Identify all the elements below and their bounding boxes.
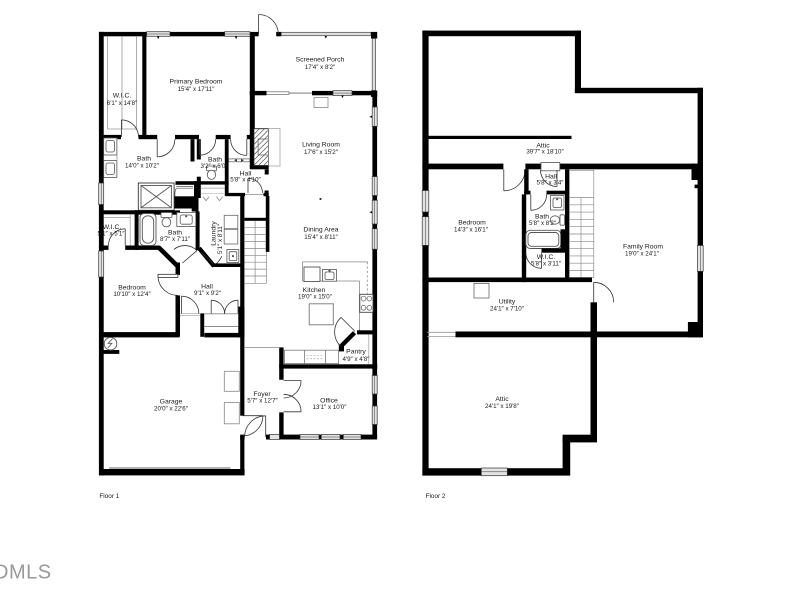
svg-text:9′1″ x 9′2″: 9′1″ x 9′2″ <box>194 290 222 297</box>
svg-text:6′1″ x 14′8″: 6′1″ x 14′8″ <box>107 100 138 107</box>
svg-text:20′0″ x 22′6″: 20′0″ x 22′6″ <box>154 406 189 413</box>
svg-text:Living Room: Living Room <box>302 142 340 149</box>
svg-text:3′2″ x 6′0″: 3′2″ x 6′0″ <box>201 163 229 170</box>
svg-text:5′8″ x 8′2″: 5′8″ x 8′2″ <box>529 220 557 227</box>
svg-text:17′6″ x 15′2″: 17′6″ x 15′2″ <box>304 149 339 156</box>
svg-text:Family Room: Family Room <box>623 244 663 251</box>
svg-text:14′0″ x 10′2″: 14′0″ x 10′2″ <box>125 163 160 170</box>
svg-text:14′3″ x 16′1″: 14′3″ x 16′1″ <box>454 227 489 234</box>
svg-text:19′0″ x 15′0″: 19′0″ x 15′0″ <box>298 294 333 301</box>
svg-text:Bedroom: Bedroom <box>458 220 486 227</box>
svg-text:13′1″ x 10′0″: 13′1″ x 10′0″ <box>313 404 348 411</box>
svg-text:5′8″ x 4′10″: 5′8″ x 4′10″ <box>230 177 261 184</box>
svg-text:Utility: Utility <box>499 299 516 306</box>
svg-text:Primary Bedroom: Primary Bedroom <box>170 79 223 86</box>
svg-text:15′4″ x 8′11″: 15′4″ x 8′11″ <box>304 234 338 241</box>
svg-text:Attic: Attic <box>495 396 509 403</box>
svg-text:17′4″ x 8′2″: 17′4″ x 8′2″ <box>305 64 336 71</box>
svg-text:24′1″ x 7′10″: 24′1″ x 7′10″ <box>490 306 525 313</box>
svg-text:15′4″ x 17′11″: 15′4″ x 17′11″ <box>178 86 216 93</box>
svg-text:4′9″ x 4′8″: 4′9″ x 4′8″ <box>343 356 371 363</box>
svg-text:Bath: Bath <box>137 156 151 163</box>
svg-text:Garage: Garage <box>160 399 183 406</box>
svg-text:5′1″ x 8′11″: 5′1″ x 8′11″ <box>217 223 224 254</box>
svg-text:Floor 1: Floor 1 <box>99 493 119 500</box>
svg-text:10′10″ x 12′4″: 10′10″ x 12′4″ <box>113 291 151 298</box>
svg-text:8′7″ x 7′11″: 8′7″ x 7′11″ <box>160 236 191 243</box>
svg-text:DMLS: DMLS <box>0 562 52 584</box>
svg-text:W.I.C.: W.I.C. <box>113 93 132 100</box>
svg-text:Screened Porch: Screened Porch <box>296 57 345 64</box>
svg-text:Dining Area: Dining Area <box>303 227 338 234</box>
svg-text:39′7″ x 18′10″: 39′7″ x 18′10″ <box>526 149 564 156</box>
svg-text:5′7″ x 12′7″: 5′7″ x 12′7″ <box>247 398 278 405</box>
svg-text:5′8″ x 3′11″: 5′8″ x 3′11″ <box>531 261 562 268</box>
svg-text:Pantry: Pantry <box>346 349 366 356</box>
svg-text:5′1″ x 5′1″: 5′1″ x 5′1″ <box>98 231 126 238</box>
svg-text:Floor 2: Floor 2 <box>426 493 446 500</box>
svg-text:5′8″ x 3′4″: 5′8″ x 3′4″ <box>537 180 565 187</box>
svg-text:19′0″ x 24′1″: 19′0″ x 24′1″ <box>625 251 660 258</box>
svg-text:24′1″ x 19′8″: 24′1″ x 19′8″ <box>485 403 520 410</box>
